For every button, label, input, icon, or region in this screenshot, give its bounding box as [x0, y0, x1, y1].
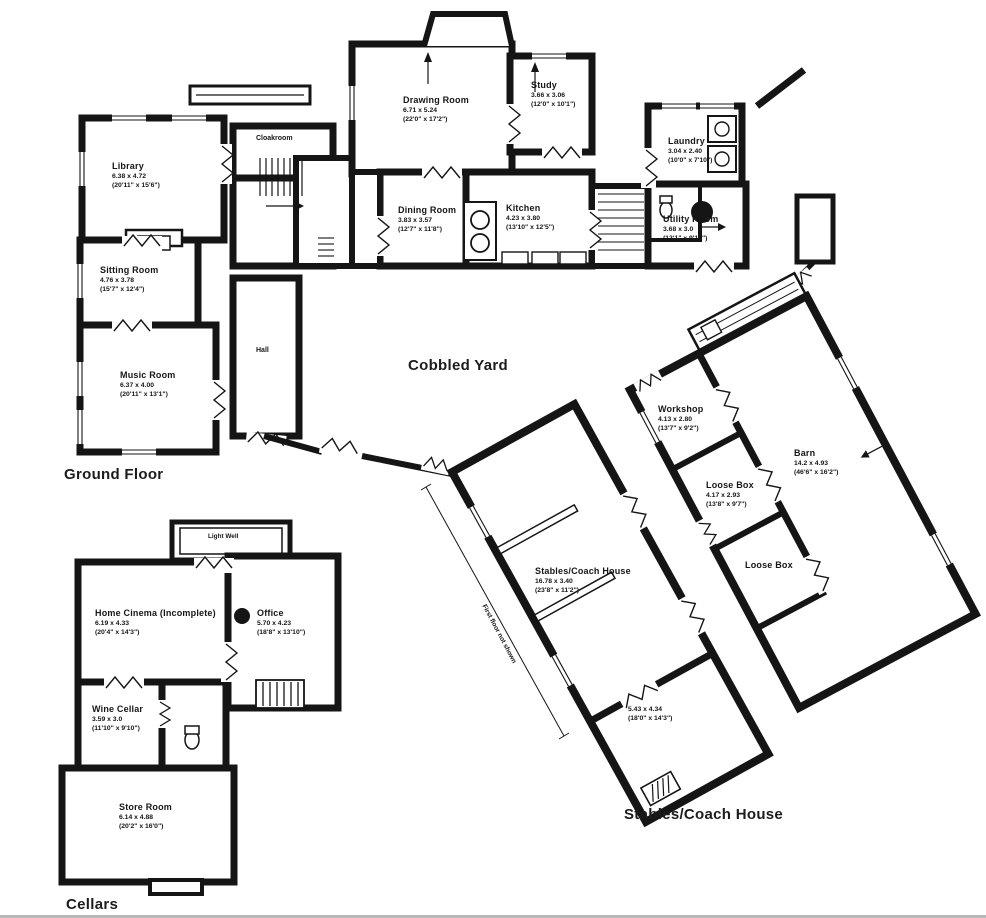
- bay-window: [424, 14, 512, 46]
- room-name: Sitting Room: [100, 265, 158, 277]
- room-dim-metric: 5.70 x 4.23: [257, 620, 305, 629]
- room-label-cloakroom: Cloakroom: [256, 134, 293, 143]
- room-name: Utility Room: [663, 214, 718, 226]
- room-name: Workshop: [658, 404, 703, 416]
- store-step: [150, 880, 202, 894]
- room-label-loose-box-2: Loose Box: [745, 560, 793, 572]
- room-dim-imperial: (15'7" x 12'4"): [100, 286, 158, 295]
- room-name: Laundry: [668, 136, 712, 148]
- room-name: Kitchen: [506, 203, 554, 215]
- room-name: Store Room: [119, 802, 172, 814]
- office-column-icon: [234, 608, 250, 624]
- room-label-workshop: Workshop 4.13 x 2.80 (13'7" x 9'2"): [658, 404, 703, 433]
- room-label-wine-cellar: Wine Cellar 3.59 x 3.0 (11'10" x 9'10"): [92, 704, 143, 733]
- section-label-ground-floor: Ground Floor: [64, 466, 163, 483]
- room-label-utility-room: Utility Room 3.68 x 3.0 (12'1" x 9'10"): [663, 214, 718, 243]
- room-label-dining-room: Dining Room 3.83 x 3.57 (12'7" x 11'8"): [398, 205, 456, 234]
- cellar-toilet-icon: [185, 726, 199, 749]
- office-stairs-icon: [256, 680, 304, 708]
- room-name: Loose Box: [745, 560, 793, 572]
- room-dim-metric: 3.68 x 3.0: [663, 226, 718, 235]
- room-dim-metric: 4.76 x 3.78: [100, 277, 158, 286]
- room-label-store-room: Store Room 6.14 x 4.88 (20'2" x 16'0"): [119, 802, 172, 831]
- room-label-drawing-room: Drawing Room 6.71 x 5.24 (22'0" x 17'2"): [403, 95, 469, 124]
- section-label-cobbled-yard: Cobbled Yard: [408, 357, 508, 374]
- room-name: Wine Cellar: [92, 704, 143, 716]
- room-name: Barn: [794, 448, 838, 460]
- room-name: Stables/Coach House: [535, 566, 631, 578]
- room-dim-metric: 3.59 x 3.0: [92, 716, 143, 725]
- room-name: Cloakroom: [256, 134, 293, 143]
- room-dim-metric: 14.2 x 4.93: [794, 460, 838, 469]
- room-dim-metric: 6.14 x 4.88: [119, 814, 172, 823]
- room-dim-metric: 16.78 x 3.40: [535, 578, 631, 587]
- room-label-light-well: Light Well: [208, 533, 238, 541]
- room-label-stables-store: 5.43 x 4.34 (18'0" x 14'3"): [628, 706, 672, 724]
- room-label-study: Study 3.66 x 3.06 (12'0" x 10'1"): [531, 80, 575, 109]
- room-dim-imperial: (23'8" x 11'2"): [535, 587, 631, 596]
- room-name: Music Room: [120, 370, 176, 382]
- room-name: Library: [112, 161, 160, 173]
- room-label-stables-coach-house: Stables/Coach House 16.78 x 3.40 (23'8" …: [535, 566, 631, 595]
- room-dim-metric: 6.38 x 4.72: [112, 173, 160, 182]
- room-dim-metric: 6.71 x 5.24: [403, 107, 469, 116]
- room-label-kitchen: Kitchen 4.23 x 3.80 (13'10" x 12'5"): [506, 203, 554, 232]
- room-dim-imperial: (13'7" x 9'2"): [658, 425, 703, 434]
- room-dim-metric: 4.13 x 2.80: [658, 416, 703, 425]
- room-dim-imperial: (18'8" x 13'10"): [257, 629, 305, 638]
- section-label-cellars: Cellars: [66, 896, 118, 913]
- room-label-home-cinema: Home Cinema (Incomplete) 6.19 x 4.33 (20…: [95, 608, 216, 637]
- room-name: Study: [531, 80, 575, 92]
- room-dim-metric: 6.19 x 4.33: [95, 620, 216, 629]
- room-dim-imperial: (10'0" x 7'10"): [668, 157, 712, 166]
- room-name: Hall: [256, 346, 269, 355]
- room-dim-metric: 3.66 x 3.06: [531, 92, 575, 101]
- room-label-laundry: Laundry 3.04 x 2.40 (10'0" x 7'10"): [668, 136, 712, 165]
- room-dim-imperial: (13'10" x 12'5"): [506, 224, 554, 233]
- room-name: Dining Room: [398, 205, 456, 217]
- room-name: Home Cinema (Incomplete): [95, 608, 216, 620]
- room-dim-imperial: (20'2" x 16'0"): [119, 823, 172, 832]
- room-name: Light Well: [208, 533, 238, 541]
- room-label-loose-box-1: Loose Box 4.17 x 2.93 (13'8" x 9'7"): [706, 480, 754, 509]
- room-label-office: Office 5.70 x 4.23 (18'8" x 13'10"): [257, 608, 305, 637]
- room-dim-imperial: (22'0" x 17'2"): [403, 116, 469, 125]
- room-name: Office: [257, 608, 305, 620]
- room-name: Loose Box: [706, 480, 754, 492]
- room-dim-imperial: (12'0" x 10'1"): [531, 101, 575, 110]
- room-dim-metric: 4.17 x 2.93: [706, 492, 754, 501]
- floorplan: Library 6.38 x 4.72 (20'11" x 15'6") Sit…: [0, 0, 986, 918]
- room-dim-imperial: (20'11" x 15'6"): [112, 182, 160, 191]
- room-name: Drawing Room: [403, 95, 469, 107]
- boundary-wall: [757, 70, 804, 106]
- room-label-music-room: Music Room 6.37 x 4.00 (20'11" x 13'1"): [120, 370, 176, 399]
- room-dim-metric: 3.83 x 3.57: [398, 217, 456, 226]
- room-dim-imperial: (46'6" x 16'2"): [794, 469, 838, 478]
- room-dim-imperial: (12'7" x 11'8"): [398, 226, 456, 235]
- room-dim-imperial: (12'1" x 9'10"): [663, 235, 718, 244]
- room-label-hall: Hall: [256, 346, 269, 355]
- room-label-library: Library 6.38 x 4.72 (20'11" x 15'6"): [112, 161, 160, 190]
- room-label-sitting-room: Sitting Room 4.76 x 3.78 (15'7" x 12'4"): [100, 265, 158, 294]
- porch-walls: [797, 196, 833, 262]
- room-dim-metric: 4.23 x 3.80: [506, 215, 554, 224]
- room-dim-metric: 5.43 x 4.34: [628, 706, 672, 715]
- section-label-stables: Stables/Coach House: [624, 806, 783, 823]
- room-dim-metric: 3.04 x 2.40: [668, 148, 712, 157]
- room-dim-imperial: (18'0" x 14'3"): [628, 715, 672, 724]
- room-dim-metric: 6.37 x 4.00: [120, 382, 176, 391]
- room-label-barn: Barn 14.2 x 4.93 (46'6" x 16'2"): [794, 448, 838, 477]
- room-dim-imperial: (13'8" x 9'7"): [706, 501, 754, 510]
- room-hall-walls: [233, 278, 299, 436]
- room-dim-imperial: (20'4" x 14'3"): [95, 629, 216, 638]
- room-dim-imperial: (11'10" x 9'10"): [92, 725, 143, 734]
- cellar-wc-walls: [162, 682, 226, 768]
- room-dim-imperial: (20'11" x 13'1"): [120, 391, 176, 400]
